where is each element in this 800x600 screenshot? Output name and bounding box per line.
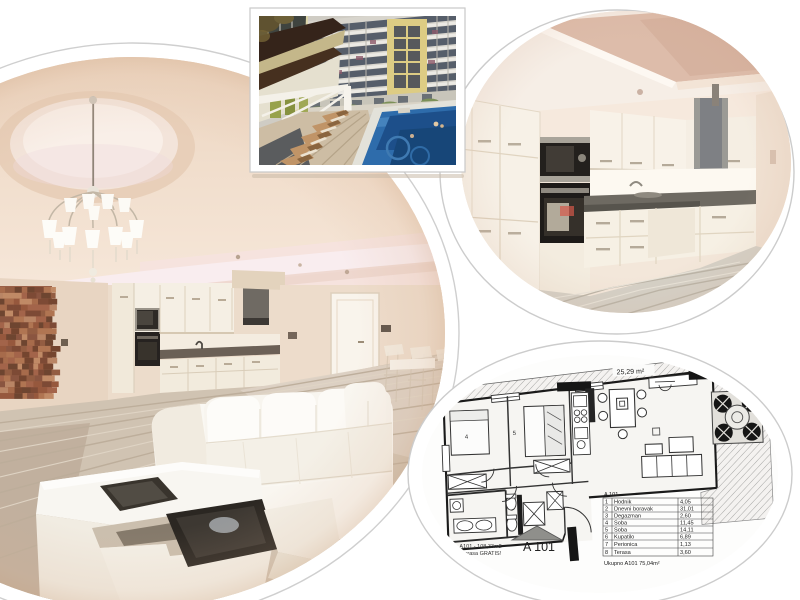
svg-text:3: 3 [605,514,608,520]
svg-text:1,13: 1,13 [680,542,691,548]
svg-text:2: 2 [605,507,608,513]
svg-text:8: 8 [605,550,608,556]
svg-text:Soba: Soba [614,528,628,534]
svg-text:31,01: 31,01 [680,507,694,513]
svg-text:4,05: 4,05 [680,500,691,506]
svg-text:Hodnik: Hodnik [614,500,632,506]
svg-text:A 101: A 101 [604,492,618,498]
svg-text:Perionica: Perionica [614,542,638,548]
svg-text:14,11: 14,11 [680,528,694,534]
svg-text:~ A101 - 108,33m2: ~ A101 - 108,33m2 [455,544,502,550]
svg-text:Terasa: Terasa [614,550,632,556]
svg-text:6,89: 6,89 [680,535,691,541]
svg-text:A 101: A 101 [523,540,555,554]
svg-text:Soba: Soba [614,521,628,527]
svg-text:Kupatilo: Kupatilo [614,535,634,541]
svg-text:2,60: 2,60 [680,514,691,520]
svg-text:Dnevni boravak: Dnevni boravak [614,507,653,513]
svg-text:Degazman: Degazman [614,514,641,520]
svg-text:6: 6 [605,535,608,541]
svg-text:25,29 m²: 25,29 m² [616,368,645,376]
svg-text:1: 1 [605,500,608,506]
svg-text:3,60: 3,60 [680,550,691,556]
svg-text:11,45: 11,45 [680,521,694,527]
svg-text:5: 5 [605,528,608,534]
svg-text:7: 7 [605,542,608,548]
svg-text:Ukupno A101 75,04m²: Ukupno A101 75,04m² [604,561,660,567]
svg-text:4: 4 [605,521,608,527]
